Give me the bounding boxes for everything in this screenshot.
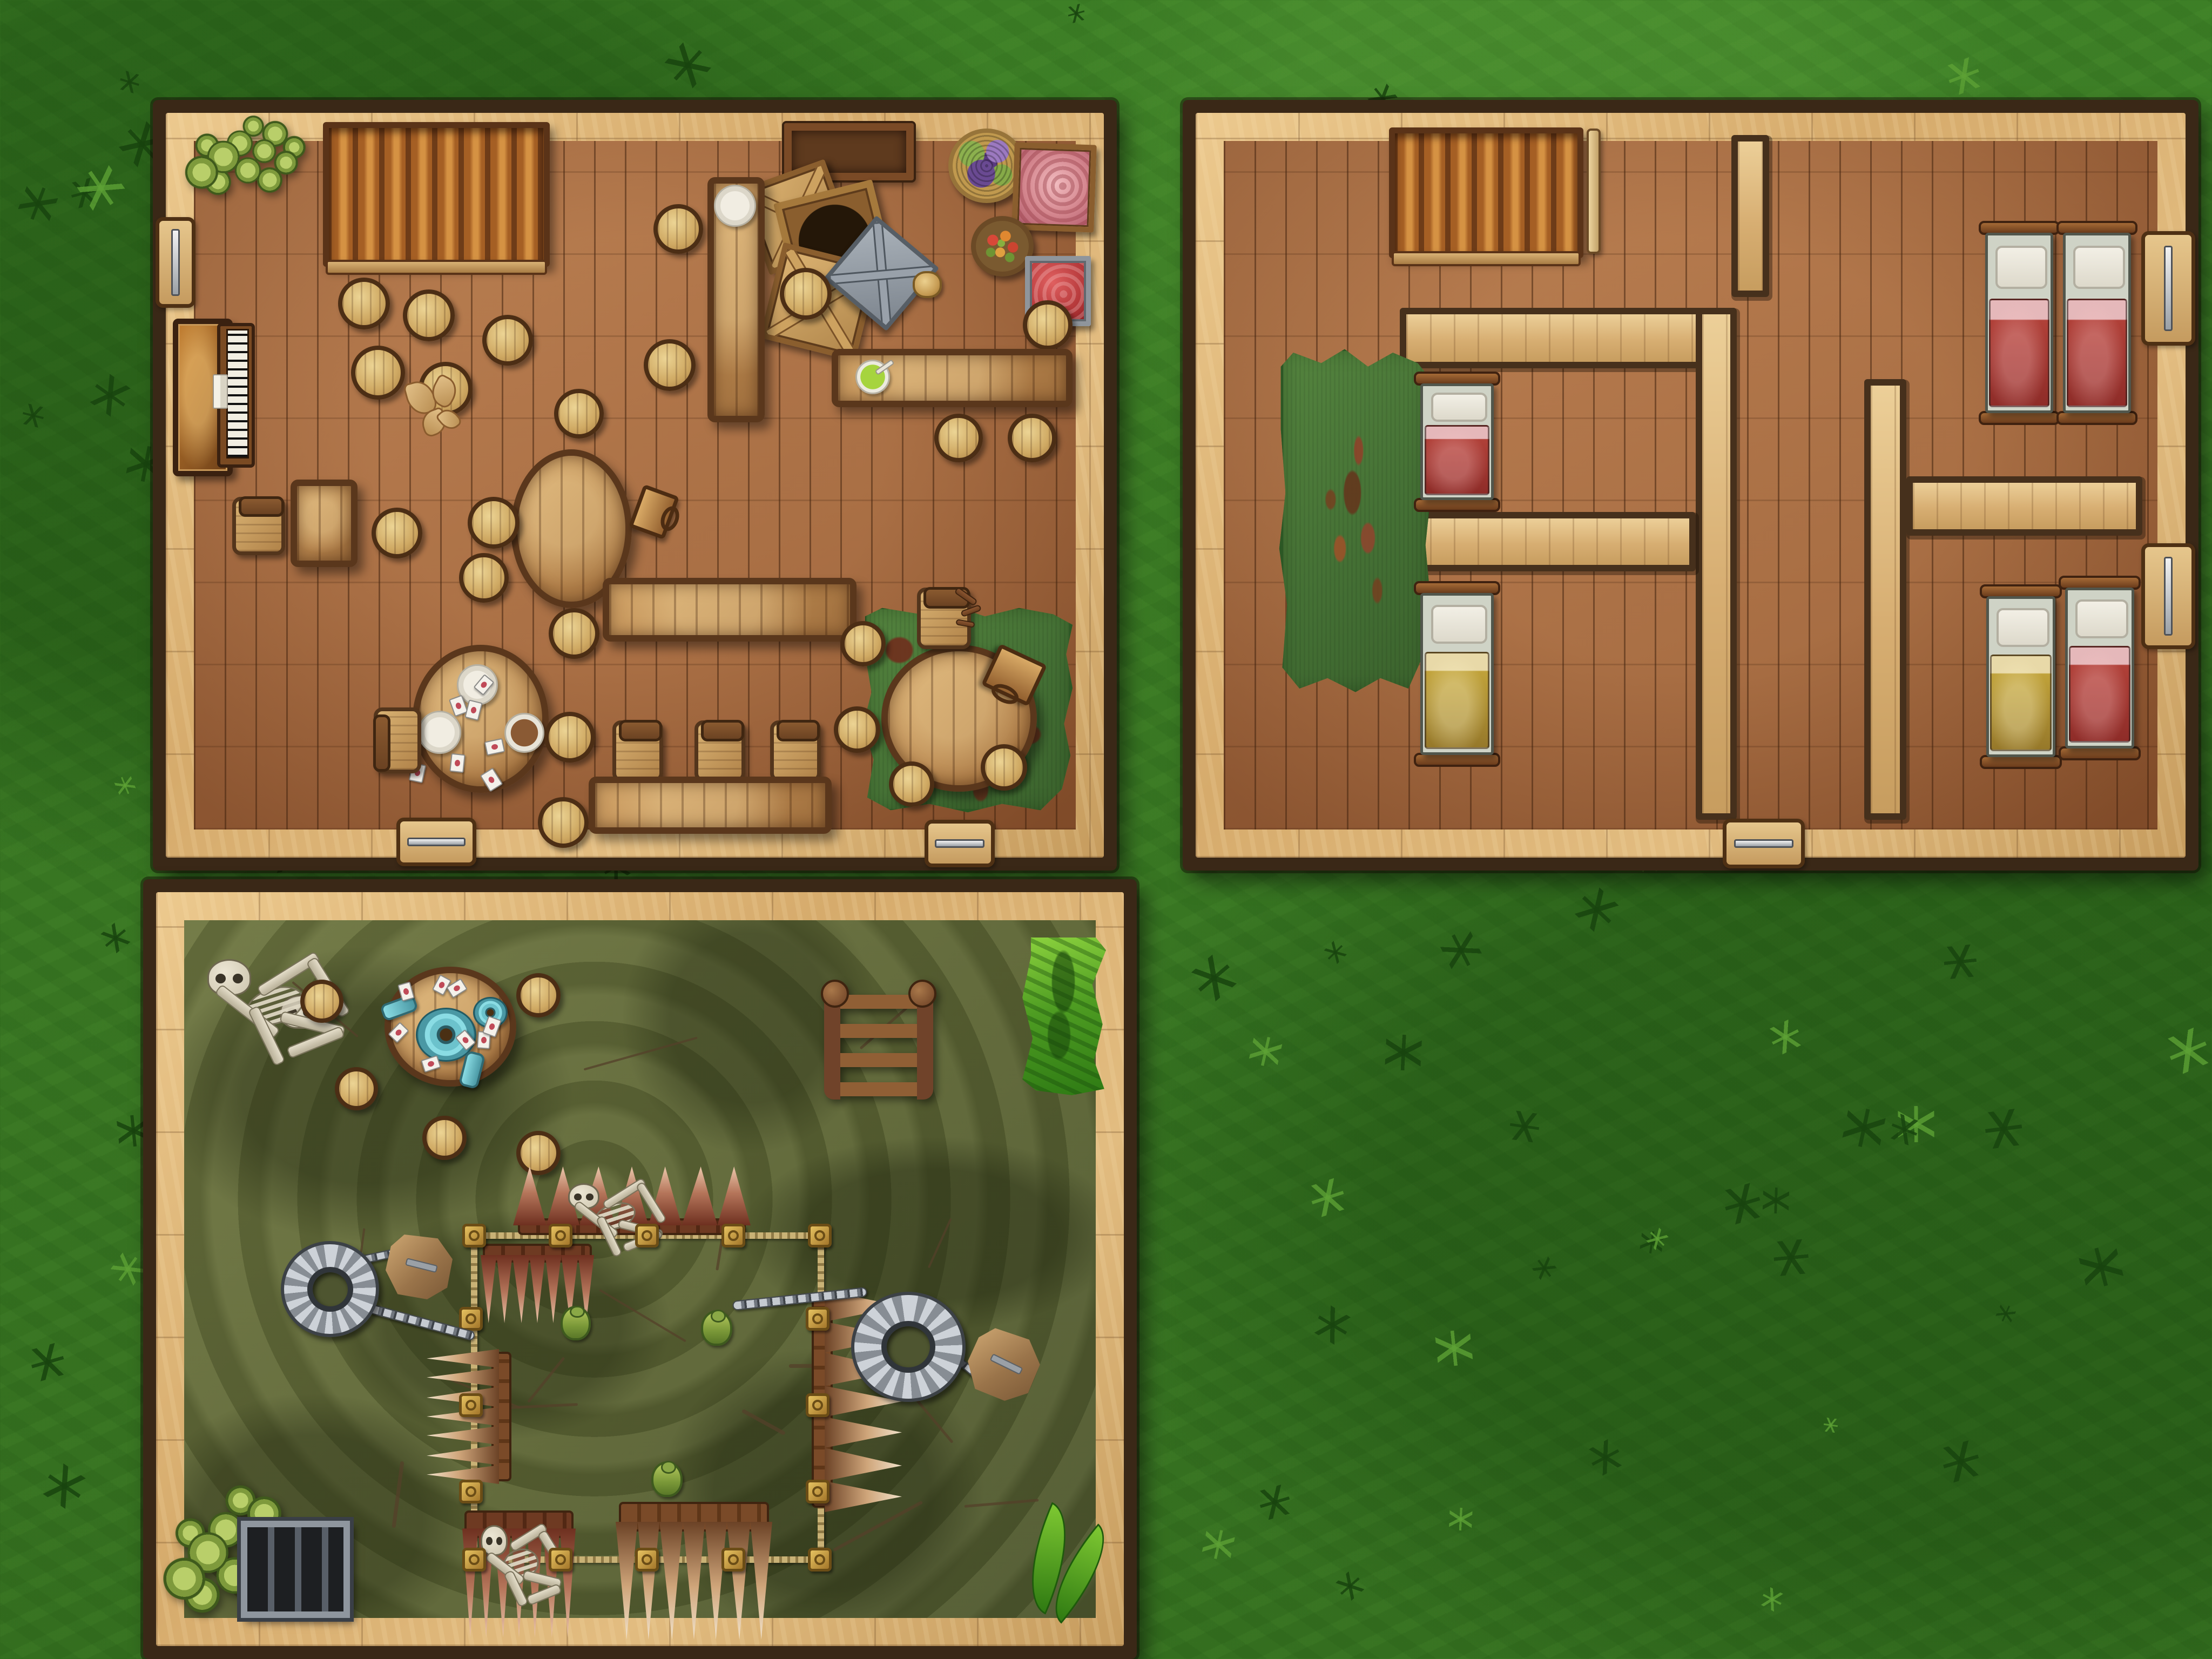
grass-leaf-icon [1307,1177,1348,1218]
green-slime-growth [177,107,313,203]
grass-leaf-icon [113,774,136,797]
piano-keys [226,329,249,458]
green-beetle [701,1310,732,1346]
stool [338,278,390,329]
pillow [1997,608,2049,646]
inn-wall-v1 [1731,135,1769,297]
plate [714,185,756,227]
grass-leaf-icon [1065,3,1087,24]
blanket [1989,299,2049,407]
long-table [603,578,857,642]
stool [516,973,561,1017]
rope-anchor [459,1393,483,1417]
grass-leaf-icon [1842,1105,1887,1150]
green-beetle [561,1306,591,1340]
grass-leaf-icon [1333,1569,1367,1603]
grass-leaf-icon [109,1249,148,1289]
grass-leaf-icon [1721,1182,1765,1226]
stool [538,797,589,848]
stool [403,289,455,341]
inn-wall-v3 [1864,379,1906,820]
stool [780,268,832,320]
grass-leaf-icon [1766,1018,1804,1056]
stool [468,497,520,549]
rope-anchor [549,1224,572,1247]
pillow [1431,393,1487,421]
rope-anchor [806,1393,829,1417]
stool [335,1067,378,1110]
rope-anchor [635,1548,659,1572]
rope-anchor [549,1548,572,1572]
battle-map [0,0,2212,1659]
stool [549,608,599,659]
stool [889,761,934,807]
wooden-ladder [824,987,933,1100]
fruit-bowl [971,216,1034,276]
grass-leaf-icon [86,371,134,419]
green-drink [855,360,890,394]
inn-log-counter [1389,127,1583,258]
bed-red [2061,223,2133,423]
blanket [1425,652,1490,749]
rope-anchor [808,1548,832,1572]
grass-leaf-icon [1322,939,1349,966]
grass-leaf-icon [2163,1026,2212,1076]
grass-leaf-icon [1438,927,1484,973]
blanket [1425,425,1490,495]
grass-leaf-icon [1449,1507,1473,1531]
mattress [1420,383,1494,500]
inn-door-south [1723,819,1805,868]
grass-leaf-icon [16,182,60,226]
mattress [1420,593,1494,755]
chair [232,497,285,555]
stool [300,980,343,1023]
upright-piano [173,319,255,466]
grass-leaf-icon [1758,1586,1785,1612]
rope-anchor [459,1480,483,1503]
wood-debris [950,589,985,634]
grass-leaf-icon [662,38,715,92]
grass-leaf-icon [1435,1329,1473,1367]
grass-leaf-icon [1772,1239,1810,1276]
chair [612,720,663,782]
grass-leaf-icon [21,403,46,428]
stool [459,553,509,603]
pillow [1995,246,2047,288]
pillow [1431,605,1487,644]
grass-leaf-icon [118,70,142,95]
wood-stick [960,604,982,617]
playing-card [449,753,465,773]
grass-leaf-icon [39,1461,90,1512]
inn-door-east-1 [2141,231,2195,346]
stool [840,621,886,666]
stool [422,1116,467,1160]
chain-coil [851,1292,966,1402]
mattress [1986,596,2055,757]
stool [554,389,604,439]
stool [544,712,595,763]
stool [981,744,1027,791]
grass-leaf-icon [1385,1034,1422,1071]
stool [351,346,405,400]
grass-leaf-icon [1995,1303,2017,1325]
stool [644,339,696,391]
mattress [1985,233,2053,413]
soup-bowl [504,713,544,753]
inn-door-east-2 [2141,543,2195,649]
wood-stick [956,619,976,628]
bread-loaf [913,271,942,298]
pillow [2075,599,2128,638]
rope-anchor [635,1224,659,1247]
grass-leaf-icon [1585,1438,1625,1478]
chair [694,720,745,782]
inn-green-rug [1278,346,1433,696]
tentacle-meat-crate [1011,142,1097,232]
tavern-door-south-1 [396,818,476,866]
grass-leaf-icon [1571,884,1622,935]
grass-leaf-icon [1530,1255,1559,1283]
rope-anchor [806,1480,829,1503]
green-beetle [651,1461,683,1497]
grass-leaf-icon [1508,1110,1541,1143]
grass-leaf-icon [1188,952,1241,1005]
rope-anchor [806,1307,829,1331]
bone [526,1583,563,1606]
inn-wall-h1 [1400,308,1734,368]
bone [636,1181,667,1224]
stool [834,706,880,753]
grass-leaf-icon [1939,1439,1984,1484]
grass-leaf-icon [1256,1483,1293,1521]
grass-leaf-icon [1201,1527,1236,1562]
rope-anchor [808,1224,832,1247]
green-leaf-banner [1021,938,1106,1095]
inn-wall-h4 [1906,476,2142,536]
bed-red [2063,578,2136,758]
rope-anchor [459,1307,483,1331]
grass-leaf-icon [1983,1108,2024,1149]
wood-stick [954,587,978,607]
bed-red [1983,223,2055,423]
bed-yellow [1418,583,1496,765]
broken-jug [403,372,463,437]
blanket [2067,299,2127,407]
grass-leaf-icon [1944,56,1984,96]
grass-leaf-icon [1823,1417,1838,1433]
inn-wall-h2 [1400,512,1696,571]
sheet-music [213,374,228,409]
chair [770,720,821,782]
side-table [291,480,358,567]
grass-leaf-icon [1249,1034,1283,1069]
grass-leaf-icon [98,921,133,956]
chair [374,707,421,773]
rope-anchor [721,1548,745,1572]
mattress [2063,233,2131,413]
stool [372,508,422,558]
mattress [2065,588,2134,748]
plate [418,711,461,754]
leaning-plank [1587,129,1601,254]
rope-anchor [721,1224,745,1247]
rope-anchor [462,1548,486,1572]
grass-leaf-icon [2078,1243,2125,1290]
metal-grate [241,1521,350,1618]
pillow [2073,246,2125,288]
blanket [1990,655,2051,751]
inn-wall-v2 [1696,308,1737,820]
stool [934,414,983,462]
bed-red [1418,374,1496,510]
spike-points [616,1522,772,1640]
blanket [2069,646,2130,743]
long-table [589,777,832,834]
stool [1023,300,1073,350]
bed-yellow [1984,586,2058,767]
tavern-bar-counter [323,122,550,267]
green-leaf-shards [1022,1500,1112,1629]
chain-coil [281,1241,379,1337]
grass-leaf-icon [1943,944,1978,980]
stool [1008,414,1056,462]
grass-leaf-icon [1763,1187,1789,1213]
stool [653,204,703,254]
tavern-door-west [156,217,195,308]
grass-leaf-icon [28,1342,68,1382]
grass-leaf-icon [1311,1303,1354,1347]
rope-anchor [462,1224,486,1247]
stool [482,315,533,366]
tavern-door-south-2 [925,820,995,867]
